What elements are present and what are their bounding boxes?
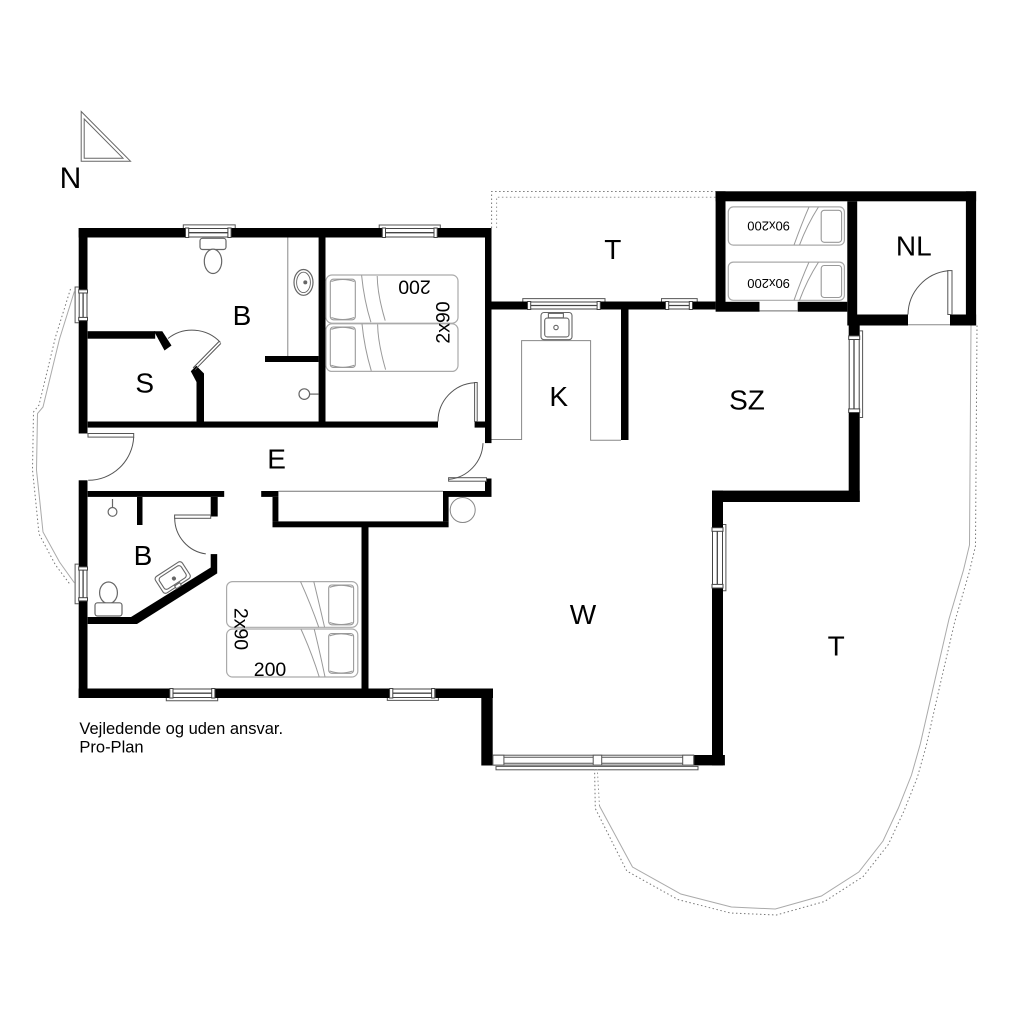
svg-text:N: N [60, 162, 82, 195]
svg-text:2x90: 2x90 [230, 608, 252, 650]
svg-text:200: 200 [398, 276, 431, 298]
svg-text:W: W [570, 599, 597, 630]
svg-text:E: E [267, 444, 286, 475]
svg-text:Pro-Plan: Pro-Plan [79, 739, 143, 757]
svg-text:Vejledende og uden ansvar.: Vejledende og uden ansvar. [79, 720, 283, 738]
svg-text:SZ: SZ [729, 385, 765, 416]
svg-text:T: T [828, 631, 845, 662]
svg-text:200: 200 [254, 659, 287, 681]
svg-text:90x200: 90x200 [747, 276, 790, 291]
svg-text:S: S [135, 368, 154, 399]
svg-text:T: T [604, 234, 621, 265]
svg-text:B: B [233, 300, 252, 331]
svg-text:K: K [549, 381, 568, 412]
svg-text:90x200: 90x200 [747, 219, 790, 234]
svg-text:B: B [134, 540, 153, 571]
svg-text:2x90: 2x90 [433, 301, 455, 343]
svg-text:NL: NL [896, 231, 932, 262]
